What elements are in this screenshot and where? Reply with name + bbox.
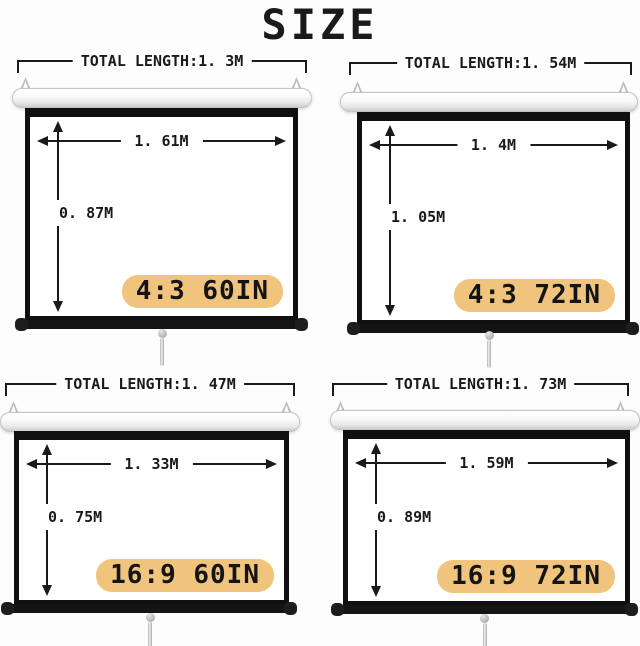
cord-handle xyxy=(160,338,164,366)
projection-screen: 1. 4M 1. 05M 4:3 72IN xyxy=(357,112,630,325)
arrowhead-down-icon xyxy=(53,301,63,312)
arrowhead-up-icon xyxy=(385,125,395,136)
arrowhead-down-icon xyxy=(371,586,381,597)
height-label: 1. 05M xyxy=(386,204,450,230)
pull-cord xyxy=(144,613,156,646)
total-length-label: TOTAL LENGTH:1. 3M xyxy=(73,52,252,70)
arrowhead-up-icon xyxy=(42,444,52,455)
projection-screen: 1. 33M 0. 75M 16:9 60IN xyxy=(14,431,289,605)
arrowhead-down-icon xyxy=(385,305,395,316)
height-label: 0. 75M xyxy=(43,504,107,530)
width-label: 1. 33M xyxy=(110,455,192,473)
width-dimension-arrow: 1. 4M xyxy=(369,137,618,153)
arrowhead-right-icon xyxy=(607,458,618,468)
arrowhead-right-icon xyxy=(266,459,277,469)
total-length-label: TOTAL LENGTH:1. 54M xyxy=(397,54,585,72)
arrowhead-up-icon xyxy=(371,443,381,454)
width-dimension-arrow: 1. 61M xyxy=(37,133,286,149)
width-label: 1. 61M xyxy=(120,132,202,150)
panel-16-9-60in: TOTAL LENGTH:1. 47M 1. 33M 0. 75M 16:9 6… xyxy=(2,381,298,644)
cord-handle xyxy=(148,622,152,646)
cord-handle xyxy=(487,340,491,368)
total-length-bracket: TOTAL LENGTH:1. 47M xyxy=(5,383,295,396)
cord-handle xyxy=(483,623,487,646)
size-badge: 16:9 72IN xyxy=(437,560,615,593)
screen-roller-casing xyxy=(330,410,640,430)
panel-4-3-60in: TOTAL LENGTH:1. 3M 1. 61M 0. 87M 4:3 60I… xyxy=(12,60,312,360)
height-dimension-arrow: 0. 87M xyxy=(50,121,66,312)
arrowhead-left-icon xyxy=(26,459,37,469)
arrowhead-left-icon xyxy=(369,140,380,150)
height-label: 0. 89M xyxy=(372,504,436,530)
height-dimension-arrow: 0. 75M xyxy=(39,444,55,596)
bottom-weight-bar xyxy=(4,604,294,613)
arrowhead-left-icon xyxy=(355,458,366,468)
size-badge: 16:9 60IN xyxy=(96,559,274,592)
arrowhead-down-icon xyxy=(42,585,52,596)
height-dimension-arrow: 1. 05M xyxy=(382,125,398,316)
width-label: 1. 59M xyxy=(445,454,527,472)
arrowhead-left-icon xyxy=(37,136,48,146)
cord-knob xyxy=(485,331,494,340)
screen-roller-casing xyxy=(12,88,312,108)
panel-4-3-72in: TOTAL LENGTH:1. 54M 1. 4M 1. 05M 4:3 72I… xyxy=(340,62,638,362)
projection-screen: 1. 59M 0. 89M 16:9 72IN xyxy=(343,430,630,606)
width-dimension-arrow: 1. 59M xyxy=(355,455,618,471)
cord-knob xyxy=(480,614,489,623)
size-badge: 4:3 60IN xyxy=(122,275,283,308)
size-badge: 4:3 72IN xyxy=(454,279,615,312)
arrowhead-up-icon xyxy=(53,121,63,132)
bottom-weight-bar xyxy=(334,605,635,614)
screen-roller-casing xyxy=(340,92,638,112)
arrowhead-right-icon xyxy=(275,136,286,146)
arrowhead-right-icon xyxy=(607,140,618,150)
cord-knob xyxy=(158,329,167,338)
panel-16-9-72in: TOTAL LENGTH:1. 73M 1. 59M 0. 89M 16:9 7… xyxy=(330,381,639,645)
size-diagram: SIZE TOTAL LENGTH:1. 3M 1. 61M 0. 87M 4:… xyxy=(0,0,640,646)
pull-cord xyxy=(156,329,168,366)
projection-screen: 1. 61M 0. 87M 4:3 60IN xyxy=(25,108,298,321)
screen-roller-casing xyxy=(0,412,300,432)
page-title: SIZE xyxy=(261,0,378,49)
width-label: 1. 4M xyxy=(457,136,530,154)
height-label: 0. 87M xyxy=(54,200,118,226)
total-length-bracket: TOTAL LENGTH:1. 73M xyxy=(332,383,629,396)
pull-cord xyxy=(479,614,491,646)
bottom-weight-bar xyxy=(18,320,305,329)
height-dimension-arrow: 0. 89M xyxy=(368,443,384,597)
cord-knob xyxy=(146,613,155,622)
width-dimension-arrow: 1. 33M xyxy=(26,456,277,472)
total-length-label: TOTAL LENGTH:1. 47M xyxy=(56,375,244,393)
total-length-label: TOTAL LENGTH:1. 73M xyxy=(387,375,575,393)
pull-cord xyxy=(483,331,495,368)
total-length-bracket: TOTAL LENGTH:1. 3M xyxy=(17,60,307,73)
total-length-bracket: TOTAL LENGTH:1. 54M xyxy=(349,62,632,75)
